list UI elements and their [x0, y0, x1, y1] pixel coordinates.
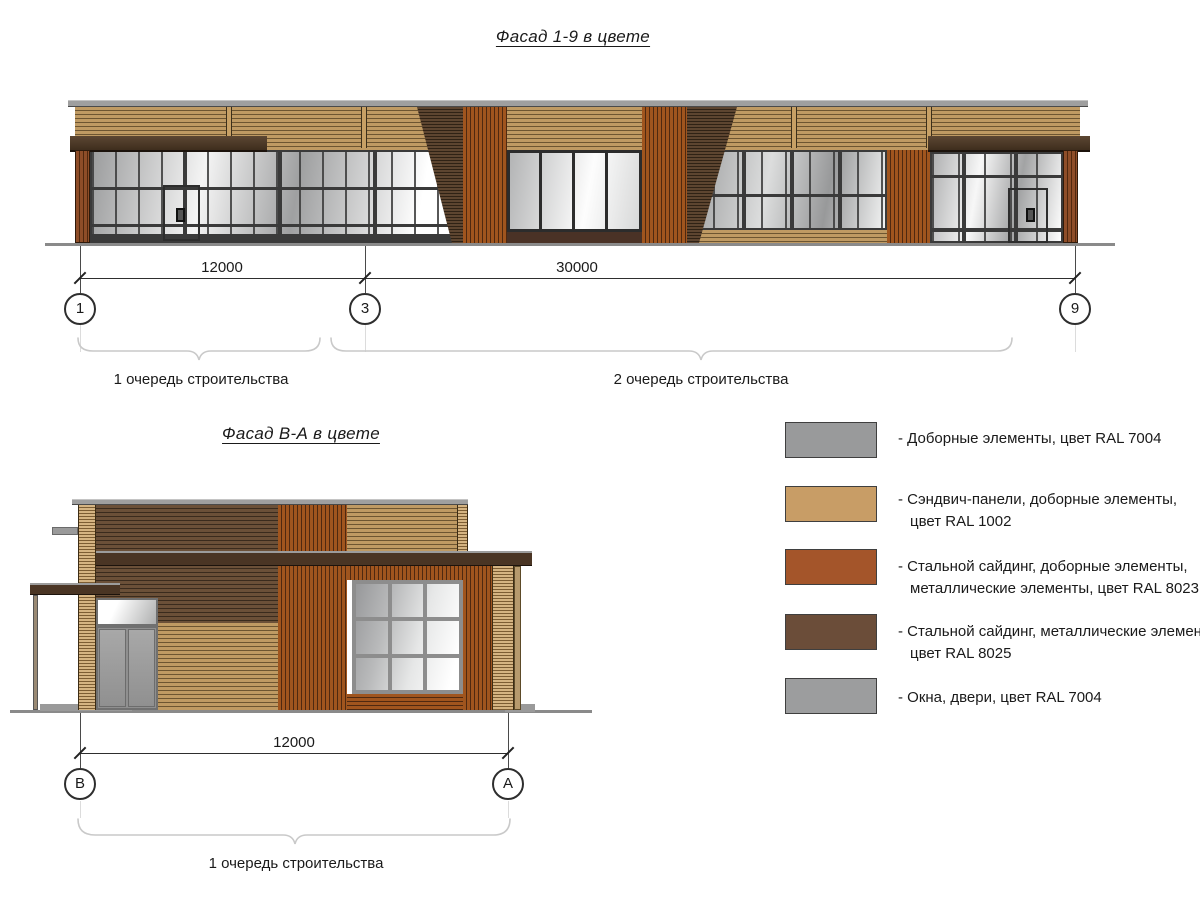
legend-line: - Доборные элементы, цвет RAL 7004 — [898, 428, 1200, 450]
legend-line: цвет RAL 1002 — [910, 511, 1200, 533]
legend-line: металлические элементы, цвет RAL 8023 — [910, 578, 1200, 600]
drawing-sheet: Фасад 1-9 в цвете — [0, 0, 1200, 900]
legend-entry: - Стальной сайдинг, доборные элементы, м… — [898, 556, 1200, 600]
legend-swatch-ral8023 — [785, 549, 877, 585]
legend-line: - Стальной сайдинг, металлические элемен… — [898, 621, 1200, 643]
legend-entry: - Доборные элементы, цвет RAL 7004 — [898, 428, 1200, 450]
legend-entry: - Сэндвич-панели, доборные элементы, цве… — [898, 489, 1200, 533]
legend-swatch-ral1002 — [785, 486, 877, 522]
legend-line: цвет RAL 8025 — [910, 643, 1200, 665]
material-legend: - Доборные элементы, цвет RAL 7004 - Сэн… — [0, 0, 1200, 900]
legend-swatch-ral8025 — [785, 614, 877, 650]
legend-swatch-windows-ral7004 — [785, 678, 877, 714]
legend-line: - Окна, двери, цвет RAL 7004 — [898, 687, 1200, 709]
legend-swatch-ral7004 — [785, 422, 877, 458]
legend-entry: - Стальной сайдинг, металлические элемен… — [898, 621, 1200, 665]
legend-line: - Стальной сайдинг, доборные элементы, — [898, 556, 1200, 578]
legend-line: - Сэндвич-панели, доборные элементы, — [898, 489, 1200, 511]
legend-entry: - Окна, двери, цвет RAL 7004 — [898, 687, 1200, 709]
